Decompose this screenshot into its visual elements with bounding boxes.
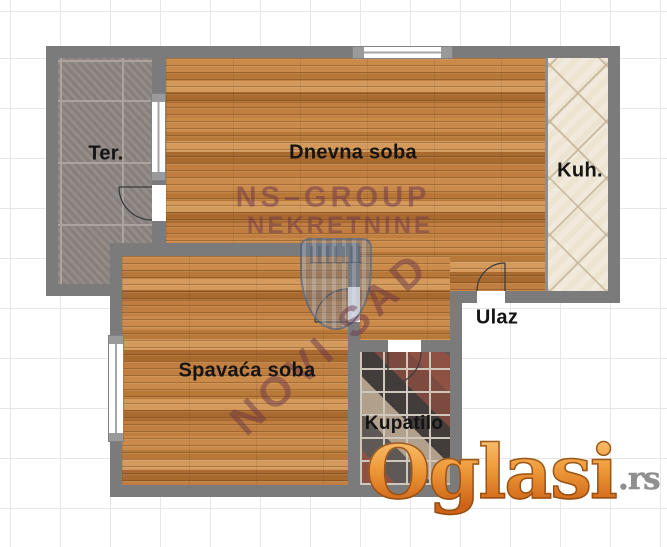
bathroom-door-gap (388, 340, 421, 352)
entrance-door-gap (477, 291, 505, 303)
room-label-living-room: Dnevna soba (289, 142, 417, 165)
site-logo: Oglasi.rs (366, 436, 658, 510)
room-label-bedroom: Spavaća soba (178, 360, 315, 383)
room-label-kitchen: Kuh. (557, 160, 603, 183)
watermark-agency-line2: NEKRETNINE (247, 212, 433, 240)
watermark-agency-line1: NS–GROUP (236, 182, 431, 215)
site-logo-brand: Oglasi (366, 430, 616, 516)
bedroom-window (108, 335, 124, 442)
wall-bottom-right (450, 291, 620, 303)
terrace-window (151, 93, 166, 181)
room-label-entrance: Ulaz (476, 307, 518, 330)
room-label-terrace: Ter. (88, 143, 123, 166)
floorplan-canvas: NS–GROUP NEKRETNINE NOVI SAD Ter. Dnevna… (0, 0, 667, 547)
site-logo-tld: .rs (618, 461, 660, 497)
wall-right (608, 46, 620, 303)
wall-kitchen-divider (545, 58, 548, 291)
terrace-door-gap (152, 185, 166, 221)
living-room-window (352, 46, 453, 59)
wall-top (46, 46, 620, 58)
wall-left (46, 46, 58, 296)
